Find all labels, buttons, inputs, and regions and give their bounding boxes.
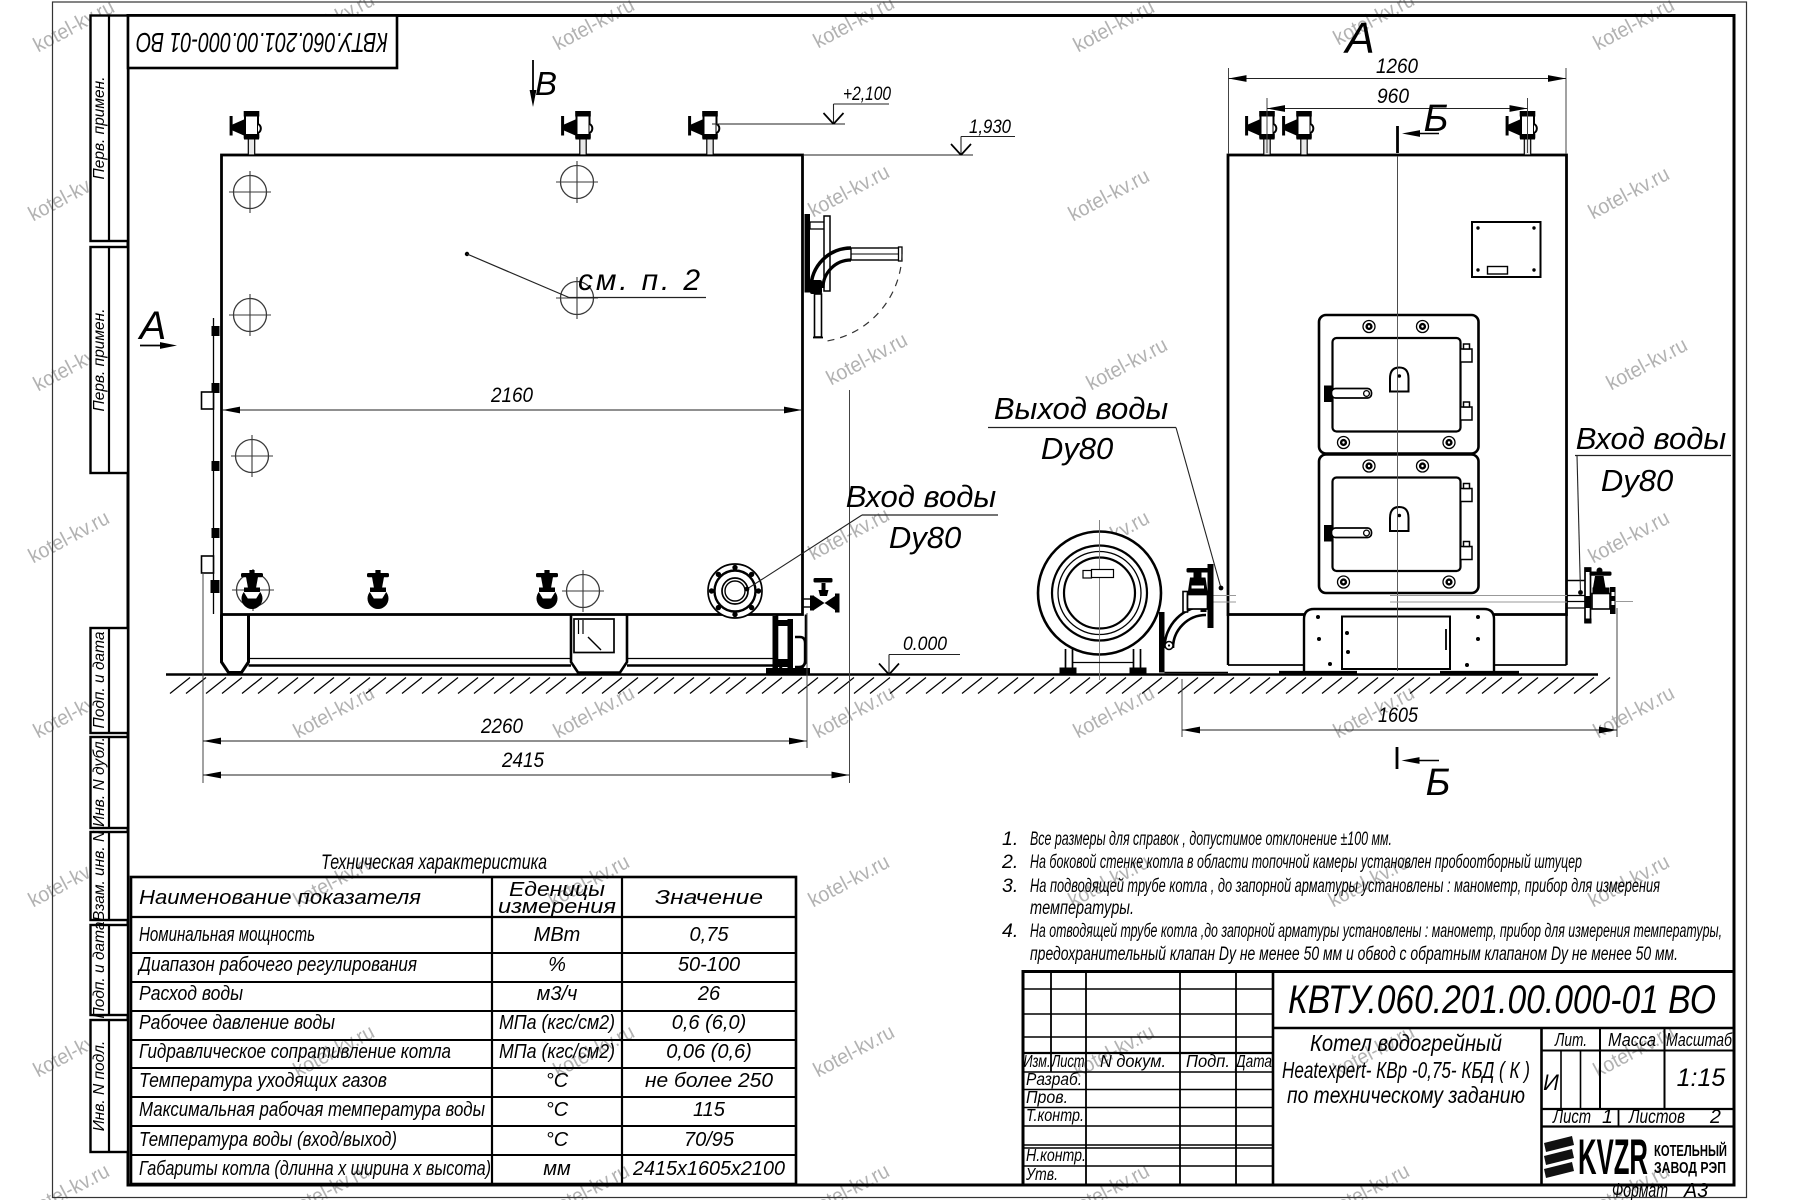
svg-text:2.: 2. [1001,851,1018,873]
svg-text:Лист: Лист [1551,1106,1591,1128]
svg-text:измерения: измерения [498,896,616,918]
svg-text:Heatexpert- КВр -0,75- КБД ( К: Heatexpert- КВр -0,75- КБД ( К ) [1282,1057,1530,1083]
svg-text:Н.контр.: Н.контр. [1026,1145,1086,1165]
svg-text:Рабочее давление воды: Рабочее давление воды [139,1012,335,1034]
svg-text:Инв. N подл.: Инв. N подл. [91,1041,108,1132]
svg-text:2415х1605х2100: 2415х1605х2100 [632,1158,785,1180]
svg-text:На боковой стенке котла в обла: На боковой стенке котла в области топочн… [1030,851,1582,873]
svg-text:Взам. инв. N: Взам. инв. N [91,830,108,921]
svg-text:Б: Б [1424,98,1449,140]
svg-text:Пров.: Пров. [1026,1087,1068,1107]
svg-text:КВТУ.060.201.00.000-01 ВО: КВТУ.060.201.00.000-01 ВО [136,27,388,58]
svg-text:kotel-kv.ru: kotel-kv.ru [810,0,898,53]
svg-text:Листов: Листов [1627,1106,1685,1128]
svg-text:%: % [548,954,566,976]
svg-text:КВТУ.060.201.00.000-01 ВО: КВТУ.060.201.00.000-01 ВО [1288,978,1716,1022]
svg-text:Масса: Масса [1608,1029,1656,1050]
svg-text:Перв. примен.: Перв. примен. [91,76,108,179]
svg-text:960: 960 [1377,85,1409,108]
svg-text:МПа (кгс/см2): МПа (кгс/см2) [499,1012,615,1034]
svg-text:kotel-kv.ru: kotel-kv.ru [805,1159,893,1200]
svg-text:Гидравлическое сопративление к: Гидравлическое сопративление котла [139,1041,451,1063]
svg-text:предохранительный клапан Dy н: предохранительный клапан Dy не менее 50 … [1030,943,1678,965]
svg-text:А3: А3 [1683,1180,1708,1200]
svg-text:N докум.: N докум. [1100,1051,1166,1071]
svg-text:kotel-kv.ru: kotel-kv.ru [1590,681,1678,743]
svg-text:Наименование показателя: Наименование показателя [139,887,421,909]
svg-text:KVZR: KVZR [1578,1129,1648,1185]
svg-text:1: 1 [1602,1106,1613,1128]
svg-text:kotel-kv.ru: kotel-kv.ru [25,1159,113,1200]
svg-text:kotel-kv.ru: kotel-kv.ru [1070,0,1158,57]
svg-text:kotel-kv.ru: kotel-kv.ru [1585,162,1673,224]
svg-text:0.000: 0.000 [903,634,947,655]
svg-text:kotel-kv.ru: kotel-kv.ru [823,328,911,390]
svg-text:0,75: 0,75 [690,924,730,946]
svg-text:kotel-kv.ru: kotel-kv.ru [1603,333,1691,395]
svg-text:°С: °С [546,1129,569,1151]
svg-text:kotel-kv.ru: kotel-kv.ru [805,850,893,912]
svg-text:Расход воды: Расход воды [139,983,243,1005]
svg-text:Инв. N дубл.: Инв. N дубл. [91,737,108,827]
svg-text:На отводящей трубе котла ,до з: На отводящей трубе котла ,до запорной ар… [1030,920,1722,942]
svg-text:kotel-kv.ru: kotel-kv.ru [1325,1159,1413,1200]
svg-text:Габариты котла (длинна х ширин: Габариты котла (длинна х ширина х высота… [139,1158,491,1180]
svg-text:kotel-kv.ru: kotel-kv.ru [1590,0,1678,55]
svg-text:мм: мм [543,1158,571,1180]
svg-text:Разраб.: Разраб. [1026,1069,1082,1089]
svg-text:4.: 4. [1002,920,1018,942]
svg-text:Т.контр.: Т.контр. [1026,1105,1084,1125]
svg-text:kotel-kv.ru: kotel-kv.ru [25,506,113,568]
svg-text:Перв. примен.: Перв. примен. [91,308,108,411]
svg-text:ЗАВОД РЭП: ЗАВОД РЭП [1654,1160,1726,1177]
svg-text:В: В [535,65,557,102]
svg-text:И: И [1543,1070,1559,1095]
svg-text:1605: 1605 [1378,704,1418,727]
svg-text:м3/ч: м3/ч [537,983,578,1005]
svg-text:по техническому заданию: по техническому заданию [1287,1082,1525,1108]
svg-text:1.: 1. [1002,828,1018,850]
svg-text:kotel-kv.ru: kotel-kv.ru [810,681,898,743]
svg-text:Подп. и дата: Подп. и дата [91,921,108,1018]
svg-text:kotel-kv.ru: kotel-kv.ru [1083,333,1171,395]
svg-text:Утв.: Утв. [1025,1164,1058,1184]
svg-text:kotel-kv.ru: kotel-kv.ru [1585,506,1673,568]
svg-text:Dy80: Dy80 [889,520,961,555]
svg-text:Изм.: Изм. [1024,1051,1051,1071]
svg-text:Dy80: Dy80 [1601,463,1673,498]
svg-text:kotel-kv.ru: kotel-kv.ru [550,0,638,55]
svg-text:Dy80: Dy80 [1041,431,1113,466]
svg-text:2415: 2415 [501,749,544,772]
svg-text:Все размеры для справок , допу: Все размеры для справок , допустимое отк… [1030,828,1392,850]
svg-text:не более 250: не более 250 [645,1070,773,1092]
svg-text:°С: °С [546,1070,569,1092]
svg-text:+2,100: +2,100 [843,84,891,105]
svg-text:Техническая характеристика: Техническая характеристика [321,851,547,874]
svg-text:Котел водогрейный: Котел водогрейный [1310,1030,1502,1056]
svg-text:50-100: 50-100 [678,954,740,976]
svg-text:kotel-kv.ru: kotel-kv.ru [1065,164,1153,226]
svg-text:Диапазон рабочего регулировани: Диапазон рабочего регулирования [137,954,417,976]
svg-text:Лист: Лист [1051,1051,1085,1071]
svg-text:2260: 2260 [480,715,523,738]
svg-text:Формат: Формат [1612,1180,1668,1200]
svg-text:kotel-kv.ru: kotel-kv.ru [805,160,893,222]
svg-text:2: 2 [1709,1106,1721,1128]
svg-text:Номинальная мощность: Номинальная мощность [139,924,315,946]
svg-text:Подп. и дата: Подп. и дата [91,631,108,728]
svg-text:Вход воды: Вход воды [1576,421,1727,456]
svg-text:Масштаб: Масштаб [1666,1029,1732,1050]
svg-text:Вход воды: Вход воды [846,479,997,514]
svg-text:Температура воды (вход/выход): Температура воды (вход/выход) [139,1129,397,1151]
svg-text:1:15: 1:15 [1677,1064,1726,1092]
svg-text:2160: 2160 [490,384,533,407]
svg-text:МПа (кгс/см2): МПа (кгс/см2) [499,1041,615,1063]
svg-text:МВт: МВт [534,924,581,946]
svg-text:Температура уходящих газов: Температура уходящих газов [139,1070,387,1092]
svg-text:kotel-kv.ru: kotel-kv.ru [810,1020,898,1082]
svg-text:А: А [138,304,167,348]
svg-text:Выход воды: Выход воды [994,391,1169,426]
svg-text:КОТЕЛЬНЫЙ: КОТЕЛЬНЫЙ [1654,1142,1727,1160]
svg-text:°С: °С [546,1099,569,1121]
svg-text:115: 115 [693,1099,726,1121]
svg-text:Значение: Значение [655,887,763,909]
svg-text:0,6 (6,0): 0,6 (6,0) [672,1012,746,1034]
svg-text:Подп.: Подп. [1186,1051,1230,1071]
svg-text:26: 26 [697,983,721,1005]
svg-text:Б: Б [1426,762,1451,804]
svg-text:Максимальная рабочая температу: Максимальная рабочая температура воды [139,1099,485,1121]
svg-text:1,930: 1,930 [969,117,1011,138]
svg-text:Лит.: Лит. [1554,1029,1587,1050]
svg-text:kotel-kv.ru: kotel-kv.ru [550,681,638,743]
svg-text:3.: 3. [1002,875,1018,897]
svg-text:А: А [1342,14,1374,63]
svg-text:0,06 (0,6): 0,06 (0,6) [666,1041,752,1063]
svg-text:1260: 1260 [1376,55,1418,78]
svg-text:температуры.: температуры. [1030,897,1134,919]
svg-text:70/95: 70/95 [684,1129,735,1151]
svg-text:Дата: Дата [1234,1051,1272,1071]
svg-text:На подводящей трубе котла ,: На подводящей трубе котла , до запорной … [1030,875,1660,897]
